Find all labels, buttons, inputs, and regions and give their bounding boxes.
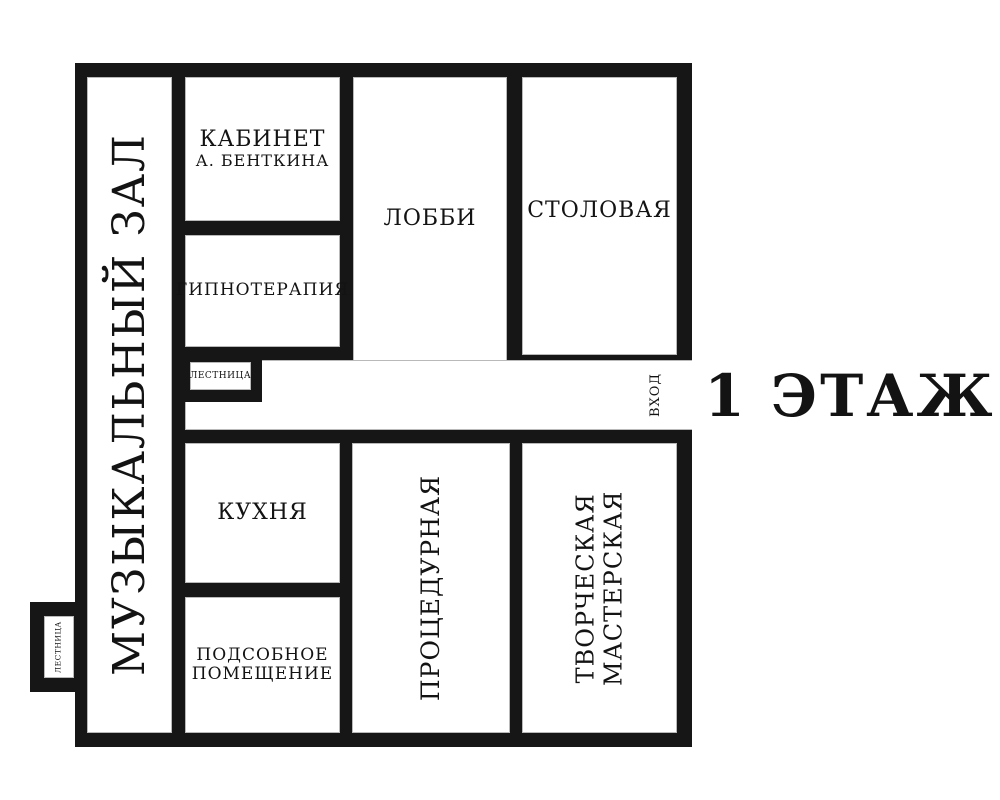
utility-room: ПОДСОБНОЕ ПОМЕЩЕНИЕ (185, 597, 340, 733)
utility-room-label-line1: ПОДСОБНОЕ (192, 646, 333, 665)
office-label-line1: КАБИНЕТ (196, 128, 330, 153)
corridor: ВХОД (262, 360, 692, 430)
office-room: КАБИНЕТ А. БЕНТКИНА (185, 77, 340, 221)
floor-plan-canvas: ЛЕСТНИЦА МУЗЫКАЛЬНЫЙ ЗАЛ КАБИНЕТ А. БЕНТ… (0, 0, 1000, 800)
dining-room: СТОЛОВАЯ (522, 77, 677, 355)
hypnotherapy-room: ГИПНОТЕРАПИЯ (185, 235, 340, 347)
music-hall-label: МУЗЫКАЛЬНЫЙ ЗАЛ (105, 134, 154, 677)
office-label: КАБИНЕТ А. БЕНТКИНА (196, 128, 330, 171)
workshop-room: ТВОРЧЕСКАЯ МАСТЕРСКАЯ (522, 443, 677, 733)
staircase-upper-room: ЛЕСТНИЦА (190, 362, 251, 390)
floor-title: 1 ЭТАЖ (715, 358, 985, 433)
music-hall-room: МУЗЫКАЛЬНЫЙ ЗАЛ (87, 77, 172, 733)
utility-room-label: ПОДСОБНОЕ ПОМЕЩЕНИЕ (192, 646, 333, 684)
staircase-lower-room: ЛЕСТНИЦА (44, 616, 74, 678)
workshop-label-line2: МАСТЕРСКАЯ (600, 490, 628, 685)
utility-room-label-line2: ПОМЕЩЕНИЕ (192, 665, 333, 684)
workshop-label-line1: ТВОРЧЕСКАЯ (571, 490, 599, 685)
staircase-lower-label: ЛЕСТНИЦА (55, 621, 63, 673)
dining-room-label: СТОЛОВАЯ (527, 199, 672, 224)
hypnotherapy-label: ГИПНОТЕРАПИЯ (176, 281, 349, 300)
staircase-upper-label: ЛЕСТНИЦА (190, 371, 251, 381)
entrance-label: ВХОД (649, 373, 664, 417)
kitchen-label: КУХНЯ (217, 501, 308, 526)
lobby-room: ЛОББИ (353, 77, 507, 390)
procedure-room: ПРОЦЕДУРНАЯ (352, 443, 510, 733)
kitchen-room: КУХНЯ (185, 443, 340, 583)
lobby-label: ЛОББИ (384, 207, 477, 232)
corridor-left-stub (185, 402, 262, 430)
workshop-label: ТВОРЧЕСКАЯ МАСТЕРСКАЯ (571, 490, 628, 685)
office-label-line2: А. БЕНТКИНА (196, 152, 330, 170)
procedure-room-label: ПРОЦЕДУРНАЯ (417, 475, 445, 701)
